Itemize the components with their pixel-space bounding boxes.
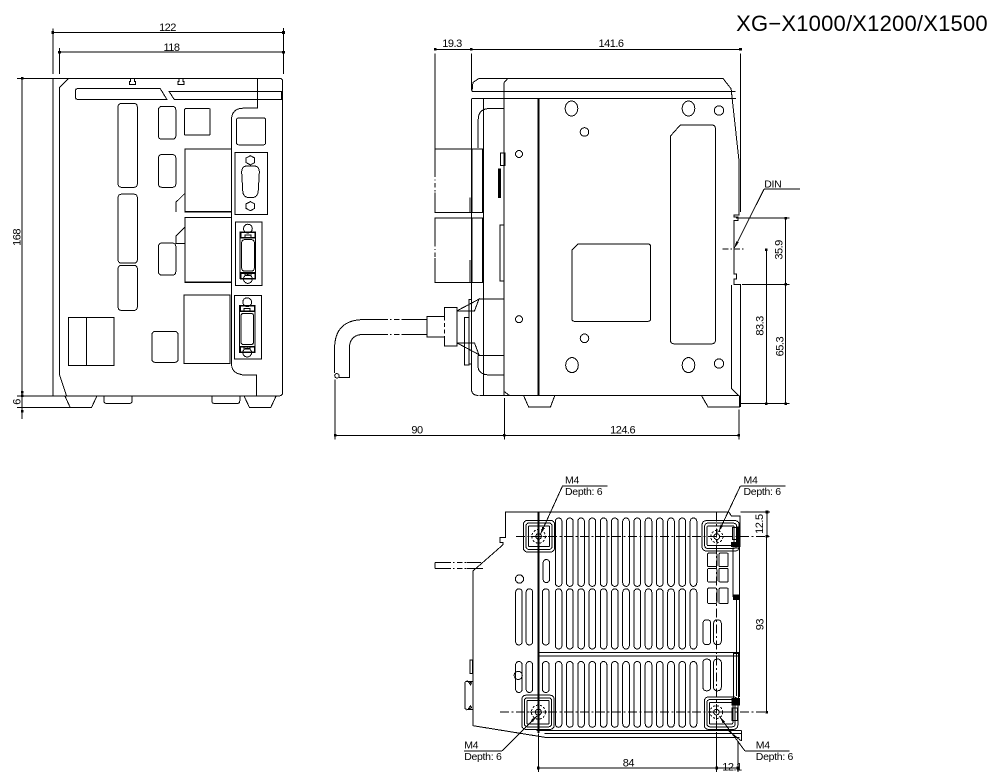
svg-text:Depth: 6: Depth: 6 bbox=[565, 486, 603, 498]
svg-text:XG−X1000/X1200/X1500: XG−X1000/X1200/X1500 bbox=[736, 11, 988, 36]
svg-text:Depth: 6: Depth: 6 bbox=[756, 751, 794, 763]
svg-text:84: 84 bbox=[623, 758, 635, 770]
svg-text:M4: M4 bbox=[744, 475, 758, 487]
svg-text:122: 122 bbox=[159, 22, 176, 34]
svg-text:83.3: 83.3 bbox=[755, 316, 767, 336]
svg-text:93: 93 bbox=[754, 619, 766, 631]
svg-text:6: 6 bbox=[11, 399, 23, 405]
svg-text:Depth: 6: Depth: 6 bbox=[744, 486, 782, 498]
svg-text:168: 168 bbox=[11, 229, 23, 246]
svg-text:Depth: 6: Depth: 6 bbox=[464, 751, 502, 763]
svg-text:12.5: 12.5 bbox=[754, 514, 766, 534]
svg-text:141.6: 141.6 bbox=[598, 38, 623, 50]
svg-text:124.6: 124.6 bbox=[610, 424, 635, 436]
svg-text:90: 90 bbox=[411, 424, 423, 436]
svg-text:12.1: 12.1 bbox=[722, 762, 742, 774]
svg-text:19.3: 19.3 bbox=[442, 38, 462, 50]
svg-text:M4: M4 bbox=[565, 474, 579, 486]
svg-text:35.9: 35.9 bbox=[774, 240, 786, 260]
svg-text:65.3: 65.3 bbox=[774, 337, 786, 357]
svg-text:M4: M4 bbox=[756, 740, 770, 752]
svg-text:118: 118 bbox=[163, 42, 179, 54]
svg-text:M4: M4 bbox=[464, 740, 478, 752]
